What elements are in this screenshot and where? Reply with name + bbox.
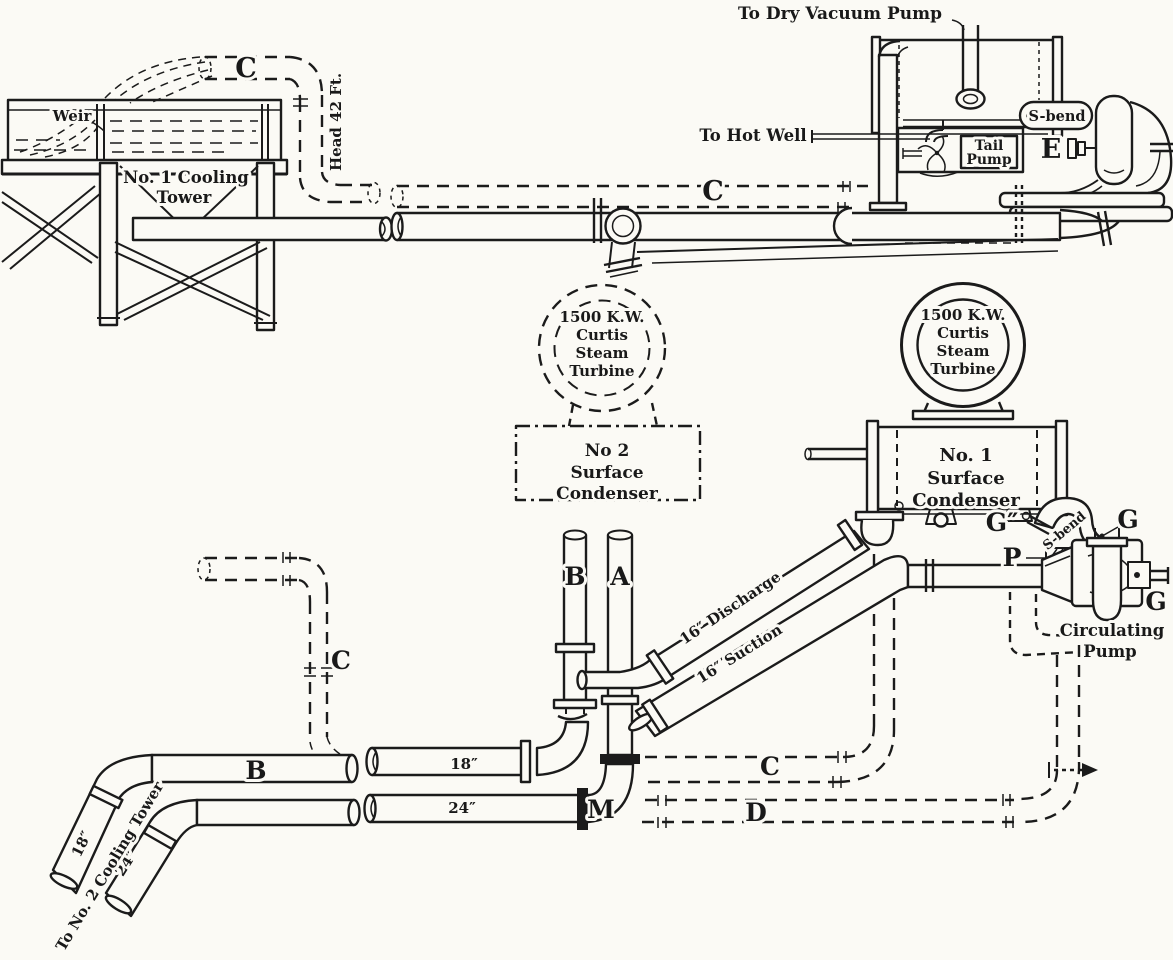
label-g-top: G″ <box>986 508 1019 537</box>
label-condenser2-line2: Surface <box>570 463 643 483</box>
label-pipe-a: A <box>609 562 630 591</box>
label-pipe-c-return: C <box>760 752 780 781</box>
label-to-dry-vacuum-pump: To Dry Vacuum Pump <box>738 4 942 24</box>
label-pipe-c-tower: C <box>235 53 257 84</box>
label-circulating-pump-line1: Circulating <box>1060 621 1165 640</box>
label-turbine1-line3: Steam <box>937 342 990 360</box>
label-pipe-b-riser: B <box>564 562 585 591</box>
label-pipe-18-main: 18″ <box>450 755 478 773</box>
label-turbine2-line1: 1500 K.W. <box>560 308 645 326</box>
label-weir: Weir <box>52 107 93 125</box>
label-s-bend-side: S-bend <box>1028 108 1085 125</box>
label-condenser1-line2: Surface <box>927 468 1004 489</box>
label-condenser2-line3: Condenser <box>556 484 659 504</box>
label-turbine1-line2: Curtis <box>937 324 989 342</box>
label-pipe-c-main: C <box>702 176 724 207</box>
label-pipe-d-return: D <box>745 798 767 827</box>
label-circulating-pump-line2: Pump <box>1083 642 1136 661</box>
label-valve-e: E <box>1041 134 1062 165</box>
label-turbine1-line1: 1500 K.W. <box>921 306 1006 324</box>
label-tail-pump-line2: Pump <box>966 152 1012 168</box>
condenser-no1-side-view <box>812 20 1173 221</box>
piping-diagram: Weir No. 1 Cooling Tower Head 42 Ft. C T… <box>0 0 1173 960</box>
label-g-shaft: G <box>1145 587 1166 616</box>
label-turbine1-line4: Turbine <box>930 360 995 378</box>
label-condenser1-line1: No. 1 <box>939 445 992 466</box>
label-condenser2-line1: No 2 <box>585 441 630 461</box>
piping-diagram-page: Weir No. 1 Cooling Tower Head 42 Ft. C T… <box>0 0 1173 960</box>
label-cooling-tower-line2: Tower <box>157 188 212 207</box>
label-turbine2-line4: Turbine <box>569 362 634 380</box>
label-turbine2-line3: Steam <box>576 344 629 362</box>
label-p: P <box>1003 543 1022 572</box>
label-to-hot-well: To Hot Well <box>699 126 806 145</box>
label-head-42ft: Head 42 Ft. <box>327 73 345 171</box>
label-pipe-c-riser: C <box>331 646 351 675</box>
label-g-right: G <box>1117 505 1138 534</box>
label-cooling-tower-line1: No. 1 Cooling <box>123 168 249 187</box>
label-pipe-b-main: B <box>245 756 266 785</box>
dashed-pipe-c-main-run <box>391 181 868 213</box>
label-turbine2-line2: Curtis <box>576 326 628 344</box>
label-elbow-m: M <box>587 795 615 824</box>
label-pipe-24-main: 24″ <box>448 799 476 817</box>
